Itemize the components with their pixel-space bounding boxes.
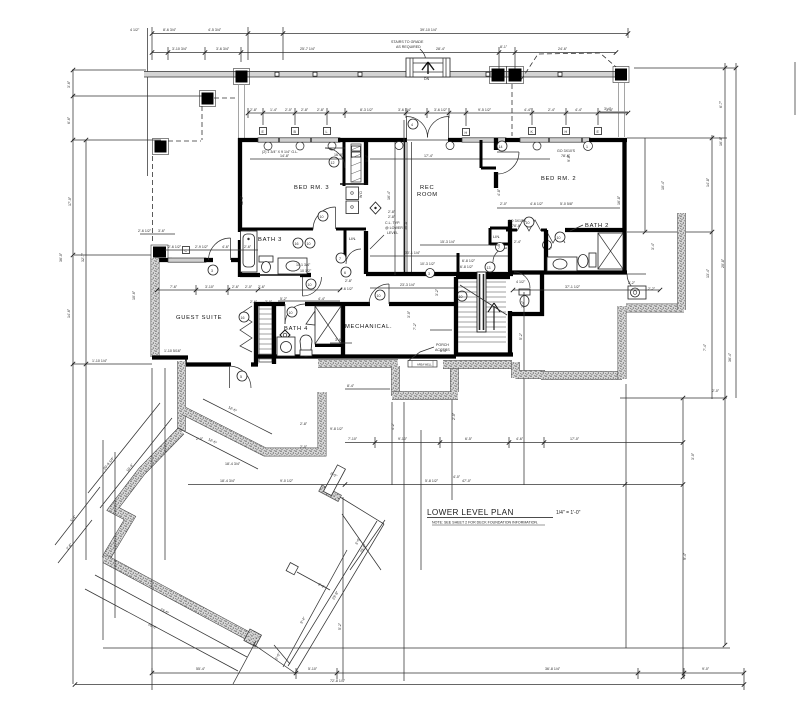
svg-text:LOWER LEVEL PLAN: LOWER LEVEL PLAN	[427, 508, 514, 517]
svg-text:4 1/2": 4 1/2"	[516, 280, 526, 284]
svg-text:28'-4": 28'-4"	[436, 47, 446, 51]
svg-text:3'-10 3/4": 3'-10 3/4"	[172, 47, 188, 51]
svg-text:9'-8 1/2": 9'-8 1/2"	[330, 427, 344, 431]
svg-text:16'-8": 16'-8"	[719, 136, 723, 146]
svg-text:DN: DN	[424, 77, 430, 81]
svg-text:1'-10 5/16": 1'-10 5/16"	[164, 349, 182, 353]
svg-text:4'-4": 4'-4"	[318, 297, 326, 301]
svg-text:10: 10	[308, 283, 312, 287]
svg-text:2'-6": 2'-6"	[232, 285, 240, 289]
svg-text:6'-5": 6'-5"	[465, 437, 473, 441]
svg-text:2'-8": 2'-8"	[301, 108, 309, 112]
svg-text:8'-3 1/2": 8'-3 1/2"	[360, 108, 374, 112]
svg-text:AS REQUIRED: AS REQUIRED	[396, 45, 421, 49]
svg-text:9'-5 1/2": 9'-5 1/2"	[478, 108, 492, 112]
svg-text:7'-2": 7'-2"	[413, 322, 417, 330]
svg-text:4'-0": 4'-0"	[453, 475, 461, 479]
svg-text:16: 16	[241, 316, 245, 320]
svg-text:3'-8": 3'-8"	[606, 108, 614, 112]
svg-text:1/4" = 1'-0": 1/4" = 1'-0"	[556, 510, 581, 516]
svg-text:4 1/2": 4 1/2"	[130, 28, 140, 32]
svg-text:15'-3 1/4": 15'-3 1/4"	[440, 240, 456, 244]
svg-text:17'-4": 17'-4"	[424, 154, 434, 158]
svg-text:37'-1 1/2": 37'-1 1/2"	[565, 285, 581, 289]
svg-text:9'-0": 9'-0"	[702, 667, 710, 671]
svg-text:ROOM: ROOM	[417, 192, 438, 198]
svg-text:6'-6": 6'-6"	[67, 116, 71, 124]
svg-text:GO 3X10'S: GO 3X10'S	[508, 219, 527, 223]
svg-text:H: H	[465, 131, 468, 135]
svg-text:14: 14	[499, 145, 503, 149]
svg-text:18'-4 3/4": 18'-4 3/4"	[225, 462, 241, 466]
svg-text:10: 10	[289, 311, 293, 315]
svg-text:REC: REC	[420, 185, 434, 191]
svg-text:6'-8 1/2": 6'-8 1/2"	[460, 265, 474, 269]
svg-text:AREA WELL: AREA WELL	[417, 362, 432, 366]
svg-text:LIN.: LIN.	[349, 236, 356, 241]
svg-text:5'-2": 5'-2"	[280, 297, 288, 301]
svg-text:LEVEL: LEVEL	[387, 231, 398, 235]
svg-text:17'-0": 17'-0"	[570, 437, 580, 441]
svg-text:78'-8": 78'-8"	[512, 224, 522, 228]
svg-text:BATH 4: BATH 4	[284, 326, 308, 332]
svg-text:3'-0": 3'-0"	[691, 452, 695, 460]
svg-text:4'-2": 4'-2"	[391, 422, 395, 430]
svg-text:14'-6": 14'-6"	[67, 308, 71, 318]
svg-text:1'-10 1/4": 1'-10 1/4"	[92, 359, 108, 363]
svg-text:7'-6": 7'-6"	[170, 285, 178, 289]
svg-text:2'-0": 2'-0"	[196, 437, 204, 441]
svg-text:C.L. TYP.: C.L. TYP.	[385, 221, 400, 225]
svg-text:LIN.: LIN.	[493, 234, 500, 239]
svg-text:9'-0 1/2": 9'-0 1/2"	[280, 479, 294, 483]
svg-text:2'-9 1/2": 2'-9 1/2"	[195, 245, 209, 249]
svg-text:2'-2": 2'-2"	[648, 287, 656, 291]
svg-text:10: 10	[307, 242, 311, 246]
svg-text:7'-4": 7'-4"	[703, 343, 707, 351]
svg-text:1: 1	[586, 145, 588, 149]
svg-text:13'-4": 13'-4"	[706, 268, 710, 278]
svg-text:10: 10	[557, 236, 561, 240]
svg-text:7: 7	[339, 257, 341, 261]
svg-text:12'-8": 12'-8"	[240, 195, 244, 205]
svg-text:BATH 3: BATH 3	[258, 237, 282, 243]
svg-text:10'-3 1/2": 10'-3 1/2"	[420, 262, 436, 266]
svg-text:5'-8 1/2": 5'-8 1/2"	[425, 479, 439, 483]
svg-text:GUEST SUITE: GUEST SUITE	[176, 315, 222, 321]
svg-text:1'-4": 1'-4"	[270, 108, 278, 112]
svg-text:4'-8": 4'-8"	[497, 188, 501, 196]
svg-text:8'-4": 8'-4"	[347, 384, 355, 388]
svg-text:3: 3	[428, 272, 430, 276]
svg-text:2'-4": 2'-4"	[548, 108, 556, 112]
svg-text:55'-4": 55'-4"	[196, 667, 206, 671]
svg-text:3'-2": 3'-2"	[435, 288, 439, 296]
svg-text:10 1 3/4": 10 1 3/4"	[296, 263, 311, 267]
svg-text:6'-8 1/2": 6'-8 1/2"	[462, 259, 476, 263]
svg-text:MECHANICAL.: MECHANICAL.	[345, 324, 392, 330]
svg-text:2'-0": 2'-0"	[500, 202, 508, 206]
svg-text:36'-4": 36'-4"	[728, 352, 732, 362]
svg-text:14'-8": 14'-8"	[280, 154, 290, 158]
svg-text:3'-6": 3'-6"	[67, 80, 71, 88]
svg-text:16'-8": 16'-8"	[617, 195, 621, 205]
svg-text:3'-0": 3'-0"	[407, 310, 411, 318]
svg-text:18'-4 3/4": 18'-4 3/4"	[220, 479, 236, 483]
svg-text:2'-4": 2'-4"	[521, 300, 525, 308]
svg-text:16'-4": 16'-4"	[387, 190, 391, 200]
svg-text:4'-6": 4'-6"	[222, 245, 230, 249]
svg-text:2'-6 1/2": 2'-6 1/2"	[138, 229, 152, 233]
svg-text:8'-6 3/4": 8'-6 3/4"	[163, 28, 177, 32]
svg-text:2'-0": 2'-0"	[265, 300, 273, 304]
svg-text:32'-7": 32'-7"	[81, 252, 85, 262]
svg-text:BED RM. 2: BED RM. 2	[541, 176, 576, 182]
svg-text:BED RM. 3: BED RM. 3	[294, 185, 329, 191]
svg-text:23'-3 1/4": 23'-3 1/4"	[400, 283, 416, 287]
svg-text:17'-0": 17'-0"	[68, 196, 72, 206]
svg-text:2'-0": 2'-0"	[285, 108, 293, 112]
svg-text:2'-6 1/2": 2'-6 1/2"	[168, 245, 182, 249]
svg-text:10: 10	[526, 221, 530, 225]
svg-text:5'-10": 5'-10"	[308, 667, 318, 671]
svg-text:2'-0": 2'-0"	[245, 285, 253, 289]
svg-text:5'-2": 5'-2"	[519, 332, 523, 340]
svg-text:2'-8": 2'-8"	[300, 422, 308, 426]
svg-text:8'-1": 8'-1"	[500, 45, 508, 49]
svg-text:W D: W D	[359, 191, 363, 198]
svg-text:2'-0": 2'-0"	[452, 412, 456, 420]
svg-text:3'-6": 3'-6"	[158, 229, 166, 233]
svg-text:10 1/2": 10 1/2"	[300, 269, 312, 273]
svg-text:2'-6": 2'-6"	[244, 245, 252, 249]
svg-text:30'-1 1/4": 30'-1 1/4"	[405, 251, 421, 255]
svg-text:PORCH: PORCH	[436, 343, 449, 347]
svg-text:12: 12	[331, 161, 335, 165]
svg-text:7'-10": 7'-10"	[348, 437, 358, 441]
svg-text:8'-4": 8'-4"	[440, 349, 448, 353]
svg-text:4: 4	[411, 123, 413, 127]
svg-text:24'-6": 24'-6"	[558, 47, 568, 51]
svg-text:STAIRS TO GRADE: STAIRS TO GRADE	[391, 40, 424, 44]
svg-text:@ LOWER: @ LOWER	[385, 226, 403, 230]
svg-text:14'-8": 14'-8"	[706, 177, 710, 187]
svg-text:2'-8": 2'-8"	[250, 108, 258, 112]
svg-text:7: 7	[498, 246, 500, 250]
svg-text:C: C	[185, 249, 188, 253]
svg-text:10'-6": 10'-6"	[132, 290, 136, 300]
svg-text:2'-2": 2'-2"	[628, 281, 636, 285]
svg-text:10'-4": 10'-4"	[661, 180, 665, 190]
svg-text:16'-8": 16'-8"	[334, 153, 344, 157]
svg-text:3'-10": 3'-10"	[205, 285, 215, 289]
svg-text:10: 10	[377, 294, 381, 298]
svg-text:47'-0": 47'-0"	[462, 479, 472, 483]
svg-text:2'-8": 2'-8"	[345, 279, 353, 283]
svg-text:3: 3	[211, 269, 213, 273]
svg-text:3'-6 3/4": 3'-6 3/4"	[216, 47, 230, 51]
svg-text:4'-4": 4'-4"	[524, 108, 532, 112]
svg-text:6'-7": 6'-7"	[719, 100, 723, 108]
svg-text:3'-4": 3'-4"	[651, 242, 655, 250]
svg-text:BATH 2: BATH 2	[585, 223, 609, 229]
svg-text:2'-0": 2'-0"	[300, 445, 308, 449]
svg-text:4'-6": 4'-6"	[516, 437, 524, 441]
svg-text:2'-0": 2'-0"	[712, 389, 720, 393]
svg-text:2'-8": 2'-8"	[317, 108, 325, 112]
svg-text:6: 6	[344, 271, 346, 275]
svg-text:3'-6": 3'-6"	[335, 338, 343, 342]
svg-text:36'-0": 36'-0"	[59, 252, 63, 262]
svg-text:5'-4": 5'-4"	[365, 154, 369, 162]
svg-text:2'-6": 2'-6"	[250, 300, 258, 304]
svg-text:4'-6 1/2": 4'-6 1/2"	[340, 287, 354, 291]
svg-text:4'-4": 4'-4"	[575, 108, 583, 112]
svg-text:20'-8": 20'-8"	[721, 258, 725, 268]
svg-text:36'-4": 36'-4"	[404, 220, 408, 230]
svg-text:25'-7 1/4": 25'-7 1/4"	[300, 47, 316, 51]
svg-text:2'-4": 2'-4"	[514, 240, 522, 244]
svg-text:3'-6 1/4": 3'-6 1/4"	[398, 108, 412, 112]
svg-text:39'-10 1/4": 39'-10 1/4"	[420, 28, 438, 32]
svg-text:36'-8 1/4": 36'-8 1/4"	[545, 667, 561, 671]
svg-text:4'-5 3/4": 4'-5 3/4"	[208, 28, 222, 32]
svg-text:5'-0 5/8": 5'-0 5/8"	[560, 202, 574, 206]
svg-text:5: 5	[240, 375, 242, 379]
svg-text:9'-8": 9'-8"	[567, 154, 571, 162]
svg-text:16: 16	[295, 242, 299, 246]
svg-text:3'-6 1/2": 3'-6 1/2"	[434, 108, 448, 112]
svg-text:13: 13	[487, 266, 491, 270]
svg-text:9'-10": 9'-10"	[398, 437, 408, 441]
svg-text:H: H	[565, 130, 568, 134]
svg-text:5'-2": 5'-2"	[338, 622, 342, 630]
svg-text:GO 3X10'S: GO 3X10'S	[557, 149, 576, 153]
svg-text:NOTE: SEE SHEET 2 FOR DECK F: NOTE: SEE SHEET 2 FOR DECK FOUNDATION IN…	[432, 521, 538, 525]
svg-text:72'-8 1/4": 72'-8 1/4"	[330, 679, 346, 683]
svg-text:9'-4": 9'-4"	[683, 552, 687, 560]
svg-text:L: L	[326, 130, 328, 134]
svg-text:4'-6 1/2": 4'-6 1/2"	[530, 202, 544, 206]
svg-text:10: 10	[320, 215, 324, 219]
